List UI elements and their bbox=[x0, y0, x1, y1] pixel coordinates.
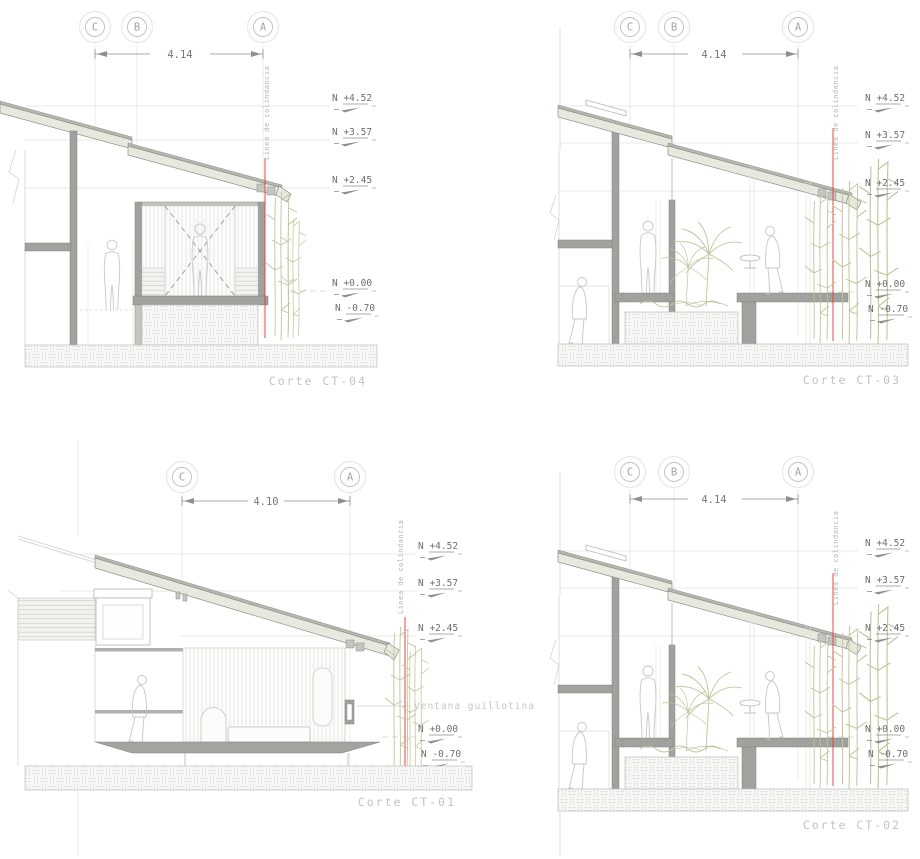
headboard-arch bbox=[201, 708, 226, 743]
grid-bubble-label: B bbox=[671, 22, 677, 34]
grid-bubble-b: B bbox=[122, 12, 153, 43]
grid-bubble-label: C bbox=[179, 472, 185, 484]
section-linework bbox=[550, 457, 908, 812]
level-text: N +3.57 bbox=[332, 127, 372, 138]
break-line bbox=[9, 150, 19, 203]
level-text: N +4.52 bbox=[865, 93, 905, 104]
section-ct04: C B A 4.14 N +4.52 N +3.57 N +2.45 N +0.… bbox=[0, 12, 379, 389]
dimension-text: 4.14 bbox=[701, 49, 726, 61]
section-label: Corte CT-01 bbox=[358, 795, 456, 809]
level-text: N +4.52 bbox=[865, 538, 905, 549]
floor-slab bbox=[133, 296, 268, 305]
grid-bubble-label: A bbox=[347, 472, 354, 484]
section-label: Corte CT-04 bbox=[269, 374, 367, 388]
bamboo-icon bbox=[281, 220, 306, 338]
section-linework bbox=[550, 12, 908, 367]
window-sash-glass bbox=[347, 704, 352, 720]
grid-bubble-label: B bbox=[134, 22, 140, 34]
window bbox=[94, 589, 152, 645]
interior-wall-lines bbox=[88, 240, 133, 345]
interior-cabin bbox=[135, 202, 265, 296]
level-text: N +0.00 bbox=[418, 724, 458, 735]
boundary-label: Línea de colindancia bbox=[832, 511, 840, 605]
grid-bubble-label: C bbox=[627, 467, 633, 479]
grid-bubble-label: A bbox=[795, 467, 802, 479]
dimension-text: 4.14 bbox=[167, 49, 192, 61]
left-annex bbox=[8, 590, 95, 766]
bamboo-icon bbox=[266, 192, 297, 340]
level-text: N +0.00 bbox=[332, 278, 372, 289]
level-text: N +4.52 bbox=[332, 93, 372, 104]
dimension: 4.14 bbox=[95, 49, 263, 61]
ground-slab bbox=[25, 766, 472, 790]
dimension-text: 4.10 bbox=[253, 496, 278, 508]
dimension: 4.10 bbox=[182, 496, 350, 508]
level-text: N +3.57 bbox=[418, 578, 458, 589]
grid-bubble-label: B bbox=[671, 467, 677, 479]
level-text: N -0.70 bbox=[335, 303, 375, 314]
section-label: Corte CT-03 bbox=[803, 373, 901, 387]
section-ct01: C A 4.10 N +4.52 N +3.57 N +2.45 N +0.00… bbox=[8, 440, 535, 856]
platform-legs bbox=[185, 753, 348, 766]
ground-slab bbox=[25, 345, 377, 367]
plinth-hatch bbox=[142, 305, 258, 345]
floor-slab bbox=[25, 243, 71, 251]
tall-panel bbox=[313, 668, 332, 726]
grid-bubble-a: A bbox=[248, 12, 279, 43]
rail bbox=[95, 648, 183, 652]
level-markers: N +4.52 N +3.57 N +2.45 N +0.00 N -0.70 bbox=[865, 93, 912, 324]
section-label: Corte CT-02 bbox=[803, 818, 901, 832]
rail bbox=[95, 710, 183, 714]
level-text: N +0.00 bbox=[865, 724, 905, 735]
grid-bubble-c: C bbox=[80, 12, 111, 43]
grid-bubble-label: C bbox=[92, 22, 98, 34]
level-text: N +3.57 bbox=[865, 130, 905, 141]
roof-beam bbox=[0, 101, 291, 202]
level-text: N +2.45 bbox=[865, 623, 905, 634]
dimension-text: 4.14 bbox=[701, 494, 726, 506]
pier bbox=[135, 305, 142, 345]
level-text: N -0.70 bbox=[868, 749, 908, 760]
grid-bubble-label: A bbox=[795, 22, 802, 34]
architectural-sections-sheet: C B A 4.14 N +4.52 N +3.57 N +2.45 N +0.… bbox=[0, 0, 920, 859]
sections-drawing: C B A 4.14 N +4.52 N +3.57 N +2.45 N +0.… bbox=[0, 0, 920, 859]
bed bbox=[228, 727, 310, 742]
level-text: N +0.00 bbox=[865, 279, 905, 290]
annotation-ventana: Ventana guillotina bbox=[414, 701, 535, 712]
section-ct03: C B A 4.14 N +4.52 N +3.57 N +2.45 N +0.… bbox=[550, 12, 912, 388]
boundary-label: Línea de colindancia bbox=[263, 66, 271, 160]
grid-bubble-c: C bbox=[167, 462, 198, 493]
platform-slab bbox=[95, 742, 380, 753]
boundary-label: Línea de colindancia bbox=[832, 66, 840, 160]
grid-bubble-label: C bbox=[627, 22, 633, 34]
boundary-label: Línea de colindancia bbox=[397, 520, 405, 614]
section-ct02: C B A 4.14 N +4.52 N +3.57 N +2.45 N +0.… bbox=[550, 457, 912, 857]
level-text: N +3.57 bbox=[865, 575, 905, 586]
level-text: N +4.52 bbox=[418, 541, 458, 552]
person-icon bbox=[104, 240, 119, 310]
grid-bubble-label: A bbox=[260, 22, 267, 34]
wall bbox=[70, 131, 77, 345]
level-text: N -0.70 bbox=[868, 304, 908, 315]
level-text: N +2.45 bbox=[865, 178, 905, 189]
level-markers: N +4.52 N +3.57 N +2.45 N +0.00 N -0.70 bbox=[865, 538, 912, 769]
person-icon bbox=[129, 676, 147, 744]
level-text: N +2.45 bbox=[332, 175, 372, 186]
level-text: N +2.45 bbox=[418, 623, 458, 634]
grid-bubble-a: A bbox=[335, 462, 366, 493]
level-text: N -0.70 bbox=[421, 749, 461, 760]
